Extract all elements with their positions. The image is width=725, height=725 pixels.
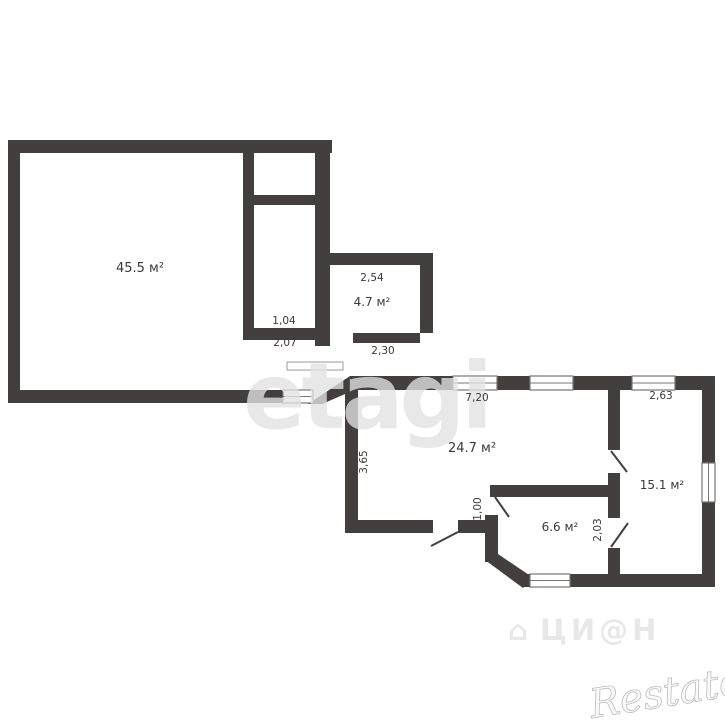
closet-divider — [243, 195, 320, 205]
cian-logo-icon: ⌂ — [508, 614, 532, 647]
room-4-7-label: 4.7 м² — [354, 295, 391, 309]
room47-wall-top — [318, 253, 433, 265]
etagi-watermark: etagi — [243, 343, 489, 450]
big-room-wall-top — [8, 140, 332, 153]
closet-wall-left — [243, 140, 254, 340]
big-room-wall-left — [8, 140, 20, 403]
room-24-7-label: 24.7 м² — [448, 441, 496, 456]
big-room-wall-right — [315, 140, 330, 346]
room47-wall-right — [420, 253, 433, 333]
dim-7-20-label: 7,20 — [465, 392, 488, 404]
interior-wall-middle — [608, 473, 620, 518]
dim-1-04-label: 1,04 — [272, 315, 296, 327]
room47-wall-bottom — [353, 333, 420, 343]
room-15-1-label: 15.1 м² — [640, 478, 685, 492]
cian-watermark: ЦИ@Н — [540, 613, 660, 647]
interior-wall-lower — [608, 548, 620, 575]
dim-2-63-label: 2,63 — [649, 390, 672, 402]
dim-2-07-label: 2,07 — [273, 337, 296, 349]
dim-1-00-label: 1,00 — [472, 497, 484, 520]
dim-2-54-label: 2,54 — [360, 272, 384, 284]
room247-wall-bottom-left — [345, 520, 433, 533]
room-6-6-label: 6.6 м² — [542, 520, 579, 534]
room-45-5-label: 45.5 м² — [116, 261, 164, 276]
floor-plan-image: etagi 45.5 м²4.7 м²24.7 м²6.6 м²15.1 м²2… — [0, 0, 725, 725]
dim-2-03-label: 2,03 — [592, 518, 604, 541]
room66-wall-top — [490, 485, 617, 497]
interior-wall-upper — [608, 388, 620, 450]
dim-2-30-label: 2,30 — [371, 345, 394, 357]
floor-plan-svg: etagi 45.5 м²4.7 м²24.7 м²6.6 м²15.1 м²2… — [0, 0, 725, 725]
dim-3-65-label: 3,65 — [358, 450, 370, 473]
